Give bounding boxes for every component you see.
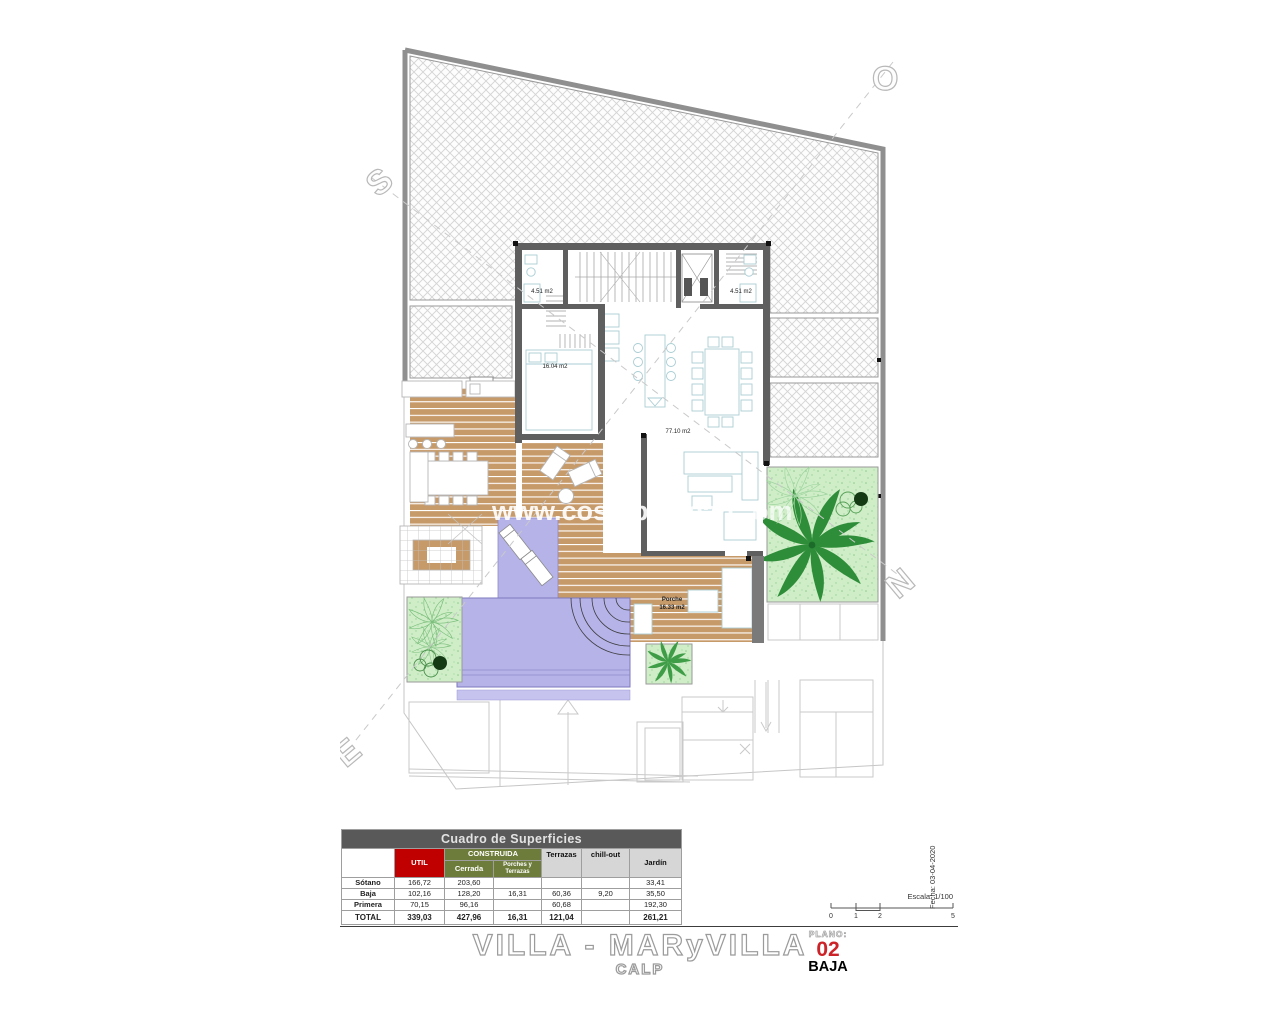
label-bath-left: 4.51 m2: [531, 289, 553, 295]
garden-right: [754, 466, 878, 603]
title-divider-line: [340, 926, 958, 927]
project-title: VILLA - MARyVILLA: [455, 929, 825, 963]
cell-porches: 16,31: [494, 889, 542, 900]
cell-cerrada: 427,96: [445, 911, 494, 925]
cell-cerrada: 96,16: [445, 900, 494, 911]
watermark-part2: om: [752, 496, 793, 526]
row-label: Primera: [342, 900, 395, 911]
cell-cerrada: 128,20: [445, 889, 494, 900]
cell-terrazas: 60,36: [542, 889, 582, 900]
plano-number: 02: [795, 939, 861, 960]
table-title: Cuadro de Superficies: [342, 830, 682, 849]
cell-terrazas: 121,04: [542, 911, 582, 925]
cell-util: 70,15: [395, 900, 445, 911]
header-construida: CONSTRUIDA: [445, 849, 542, 861]
compass-s: S: [359, 160, 401, 204]
header-porches: Porches y Terrazas: [494, 861, 542, 878]
scale-tick-1: 1: [854, 913, 858, 920]
table-row-total: TOTAL 339,03 427,96 16,31 121,04 261,21: [342, 911, 682, 925]
row-label: TOTAL: [342, 911, 395, 925]
compass-e: E: [340, 731, 369, 775]
compass-o: O: [872, 60, 898, 98]
cell-chill-out: [582, 900, 630, 911]
plano-name: BAJA: [795, 960, 861, 976]
cell-chill-out: [582, 878, 630, 889]
label-porch-name: Porche: [662, 597, 683, 603]
cell-jardin: 192,30: [630, 900, 682, 911]
header-cerrada: Cerrada: [445, 861, 494, 878]
table-row-baja: Baja 102,16 128,20 16,31 60,36 9,20 35,5…: [342, 889, 682, 900]
cell-chill-out: [582, 911, 630, 925]
cell-jardin: 33,41: [630, 878, 682, 889]
cell-porches: [494, 878, 542, 889]
garden-center: [646, 640, 692, 684]
header-porches-line2: Terrazas: [494, 869, 541, 876]
tree-icon: [433, 656, 447, 670]
cell-jardin: 35,50: [630, 889, 682, 900]
row-label: Baja: [342, 889, 395, 900]
table-row-primera: Primera 70,15 96,16 60,68 192,30: [342, 900, 682, 911]
scale-tick-5: 5: [951, 913, 955, 920]
header-porches-line1: Porches y: [494, 862, 541, 869]
surfaces-table: Cuadro de Superficies UTIL CONSTRUIDA Te…: [341, 829, 682, 925]
table-header-row-1: UTIL CONSTRUIDA Terrazas chill-out Jardí…: [342, 849, 682, 861]
header-util: UTIL: [395, 849, 445, 878]
date-label: Fecha: 03-04-2020: [928, 833, 937, 909]
cell-porches: 16,31: [494, 911, 542, 925]
watermark-part1: www.costablancah: [491, 496, 734, 526]
table-title-row: Cuadro de Superficies: [342, 830, 682, 849]
tree-icon: [854, 492, 868, 506]
scale-bar: Escala: 1/100 0 1 2 5: [820, 890, 960, 922]
plano-block: PLANO: 02 BAJA: [795, 929, 861, 976]
elevator: [682, 254, 712, 302]
cell-util: 166,72: [395, 878, 445, 889]
header-blank: [342, 849, 395, 878]
project-location: CALP: [455, 961, 825, 978]
swimming-pool: [457, 598, 630, 687]
cell-porches: [494, 900, 542, 911]
label-bedroom: 16.04 m2: [542, 364, 568, 370]
floor-plan-drawing: S O N E 4.51 m2 4.51 m2 16.04 m2 77.10 m…: [340, 30, 970, 810]
cell-util: 102,16: [395, 889, 445, 900]
header-jardin: Jardín: [630, 849, 682, 878]
label-living: 77.10 m2: [665, 429, 691, 435]
header-chill-out: chill-out: [582, 849, 630, 878]
garden-bottom-left: [407, 597, 462, 682]
row-label: Sótano: [342, 878, 395, 889]
cell-terrazas: [542, 878, 582, 889]
scale-ticks: 0 1 2 5: [829, 913, 955, 920]
label-porch-area: 16.33 m2: [659, 605, 685, 611]
header-terrazas: Terrazas: [542, 849, 582, 878]
cell-cerrada: 203,60: [445, 878, 494, 889]
cell-jardin: 261,21: [630, 911, 682, 925]
scale-tick-0: 0: [829, 913, 833, 920]
label-bath-right: 4.51 m2: [730, 289, 752, 295]
cell-util: 339,03: [395, 911, 445, 925]
cell-chill-out: 9,20: [582, 889, 630, 900]
scale-tick-2: 2: [878, 913, 882, 920]
cell-terrazas: 60,68: [542, 900, 582, 911]
table-row-sotano: Sótano 166,72 203,60 33,41: [342, 878, 682, 889]
